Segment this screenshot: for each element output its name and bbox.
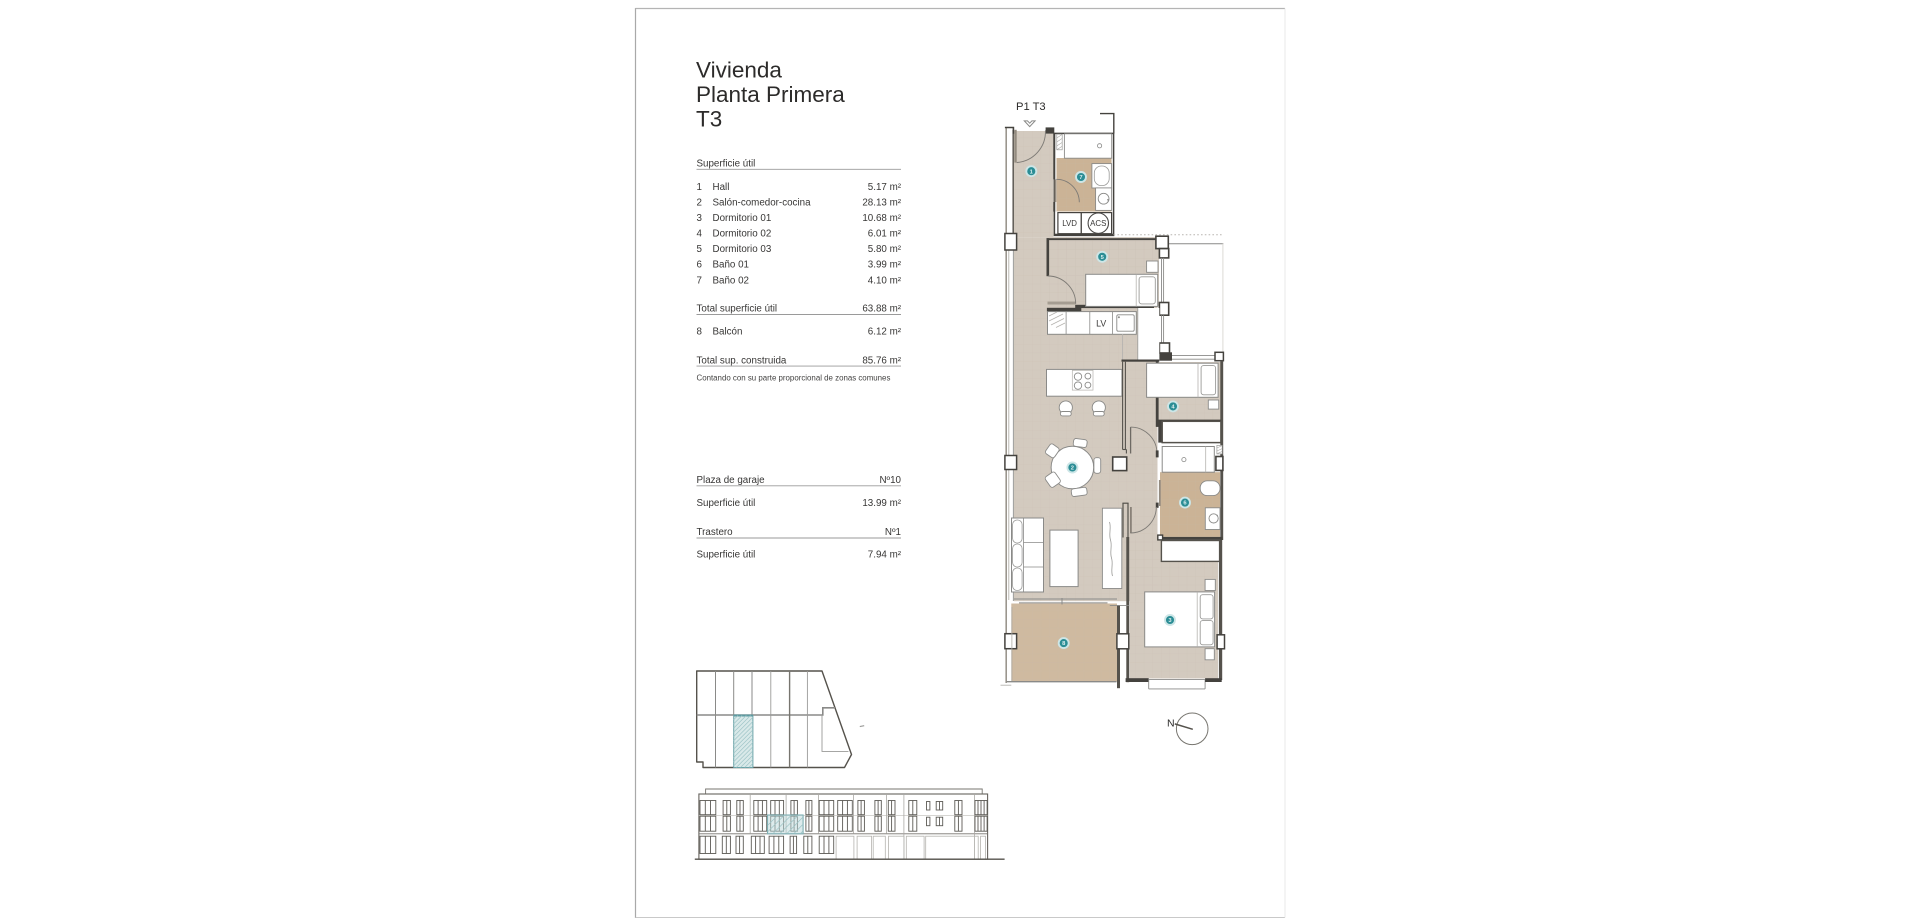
svg-text:Salón-comedor-cocina: Salón-comedor-cocina xyxy=(713,198,812,209)
svg-text:6.12 m²: 6.12 m² xyxy=(868,326,902,337)
svg-text:Balcón: Balcón xyxy=(713,326,743,337)
svg-text:Plaza de garaje: Plaza de garaje xyxy=(697,475,766,486)
svg-text:Hall: Hall xyxy=(713,182,730,193)
svg-text:LVD: LVD xyxy=(1062,219,1077,228)
svg-text:28.13 m²: 28.13 m² xyxy=(862,198,901,209)
svg-text:Baño 01: Baño 01 xyxy=(713,259,750,270)
svg-text:Dormitorio 02: Dormitorio 02 xyxy=(713,228,772,239)
svg-text:Nº1: Nº1 xyxy=(885,527,901,538)
svg-text:Superficie útil: Superficie útil xyxy=(697,498,756,509)
svg-text:Total superficie útil: Total superficie útil xyxy=(697,304,778,315)
svg-text:2: 2 xyxy=(697,198,702,209)
svg-text:3.99 m²: 3.99 m² xyxy=(868,259,902,270)
svg-text:5: 5 xyxy=(697,244,703,255)
svg-text:3: 3 xyxy=(697,213,703,224)
svg-text:T3: T3 xyxy=(696,107,722,132)
svg-text:Dormitorio 03: Dormitorio 03 xyxy=(713,244,772,255)
svg-text:ACS: ACS xyxy=(1090,219,1106,228)
svg-text:4.10 m²: 4.10 m² xyxy=(868,275,902,286)
svg-text:2: 2 xyxy=(1071,466,1074,472)
svg-text:5.80 m²: 5.80 m² xyxy=(868,244,902,255)
svg-text:Trastero: Trastero xyxy=(697,527,734,538)
svg-text:5.17 m²: 5.17 m² xyxy=(868,182,902,193)
svg-text:8: 8 xyxy=(697,326,703,337)
svg-text:Vivienda: Vivienda xyxy=(696,58,782,83)
svg-text:Dormitorio 01: Dormitorio 01 xyxy=(713,213,772,224)
svg-text:P1 T3: P1 T3 xyxy=(1016,101,1046,113)
svg-text:6.01 m²: 6.01 m² xyxy=(868,228,902,239)
svg-text:13.99 m²: 13.99 m² xyxy=(862,498,901,509)
svg-text:85.76 m²: 85.76 m² xyxy=(862,355,901,366)
svg-text:Contando con su parte proporci: Contando con su parte proporcional de zo… xyxy=(697,373,891,382)
svg-text:Baño 02: Baño 02 xyxy=(713,275,750,286)
svg-text:Total sup. construida: Total sup. construida xyxy=(697,355,787,366)
svg-text:6: 6 xyxy=(697,259,703,270)
svg-text:Superficie útil: Superficie útil xyxy=(697,550,756,561)
svg-text:7.94 m²: 7.94 m² xyxy=(868,550,902,561)
svg-text:Superficie útil: Superficie útil xyxy=(697,159,756,170)
svg-text:7: 7 xyxy=(1079,175,1082,181)
svg-text:4: 4 xyxy=(697,228,703,239)
svg-text:63.88 m²: 63.88 m² xyxy=(862,304,901,315)
svg-text:N: N xyxy=(1167,718,1175,730)
svg-text:LV: LV xyxy=(1096,318,1106,328)
svg-text:Nº10: Nº10 xyxy=(879,475,901,486)
svg-text:10.68 m²: 10.68 m² xyxy=(862,213,901,224)
svg-text:7: 7 xyxy=(697,275,702,286)
svg-text:1: 1 xyxy=(697,182,702,193)
svg-text:Planta Primera: Planta Primera xyxy=(696,82,845,107)
